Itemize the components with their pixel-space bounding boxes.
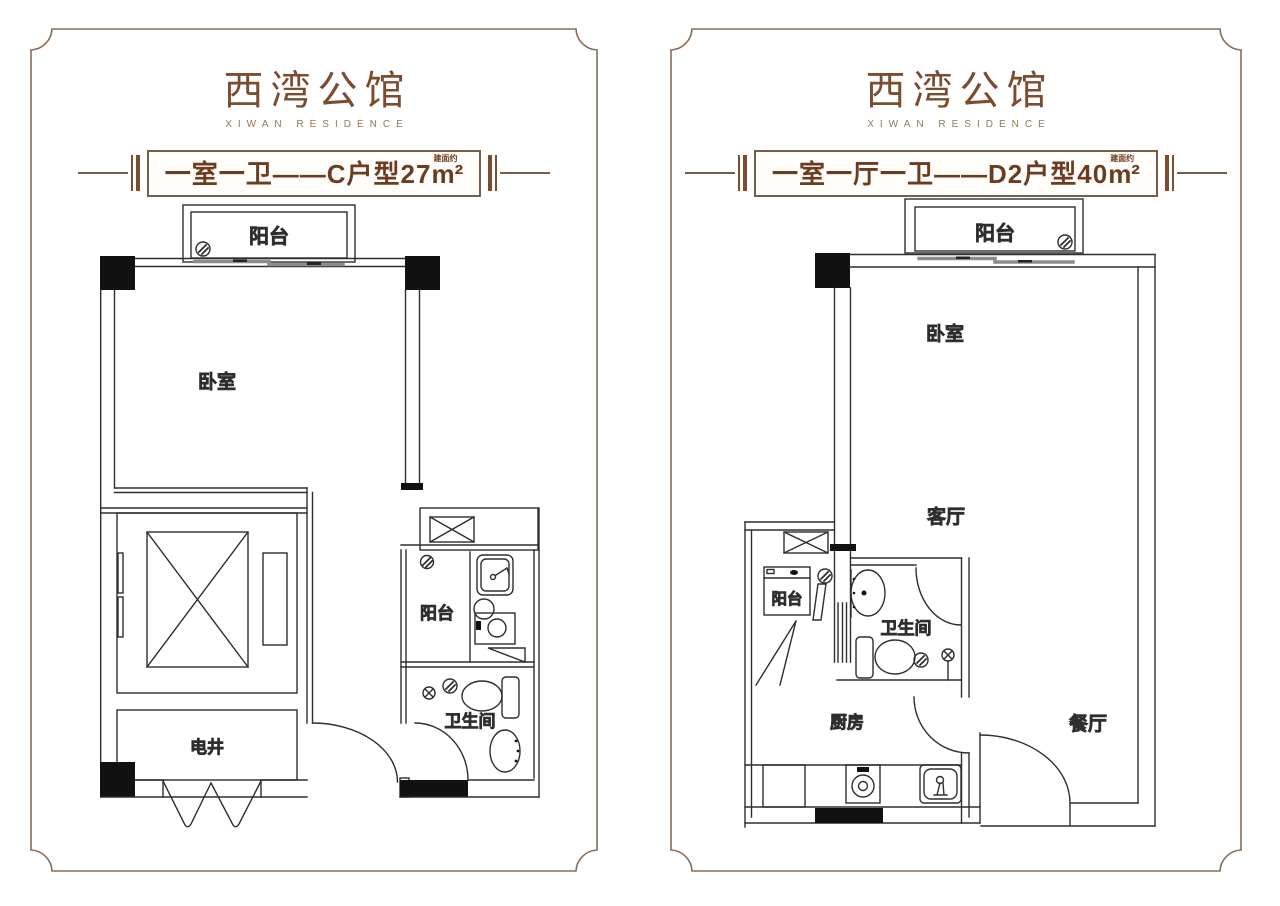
room-label-dining: 餐厅 [1069,713,1107,735]
shutoff-valve-icon [942,649,954,680]
washing-machine [474,599,515,644]
door-leaf [813,584,826,620]
unit-type-banner: 一室一卫——C户型27 建面约 m² [30,152,598,194]
shelf-corner [488,648,525,662]
shutoff-valve-icon [423,687,435,699]
bathroom-door-arc [916,568,961,625]
unit-c-panel: 西湾公馆 XIWAN RESIDENCE 一室一卫——C户型27 建面约 m² [30,28,598,872]
floor-drain-icon [818,569,832,583]
dishwasher [846,765,880,803]
balcony-door-swing [756,621,796,685]
room-label-balcony-small: 阳台 [771,590,802,608]
column [815,808,883,823]
entry-door-arc [980,735,1070,803]
banner-deco-line-right [500,172,550,174]
unit-d2-panel: 西湾公馆 XIWAN RESIDENCE 一室一厅一卫——D2户型40 建面约 … [670,28,1242,872]
banner-deco-line-left [78,172,128,174]
entry-door-arc [313,723,398,782]
brand-subtitle: XIWAN RESIDENCE [670,119,1242,130]
room-label-balcony-small: 阳台 [420,604,454,623]
cabinet [763,765,805,807]
double-swing-door [163,781,261,827]
room-label-bathroom: 卫生间 [881,619,932,638]
banner-deco-bar [1165,155,1169,191]
toilet [856,637,915,678]
unit-type-box: 一室一厅一卫——D2户型40 建面约 m² [754,150,1158,197]
elevator-shaft [147,532,248,667]
floorplan-unit-d2: 阳台 卫生间 [718,197,1178,842]
brand-title: 西湾公馆 [30,58,598,116]
banner-deco-line-right [1177,172,1227,174]
brand-subtitle: XIWAN RESIDENCE [30,119,598,130]
kitchen-sink [920,765,961,803]
wall-break-mark [830,544,856,551]
room-label-balcony-top: 阳台 [249,225,289,248]
window-break [118,553,123,593]
room-label-bathroom: 卫生间 [445,712,496,731]
banner-deco-bar [495,155,497,191]
banner-deco-line-left [685,172,735,174]
banner-deco-bar [136,155,140,191]
banner-deco-bar [131,155,133,191]
banner-deco-bar [1172,155,1174,191]
room-label-living: 客厅 [927,506,965,528]
floor-drain-icon [1058,235,1072,249]
column [400,780,468,797]
unit-type-label: 一室一卫——C户型27 [165,154,432,191]
floor-drain-icon [196,242,210,256]
column [815,253,850,288]
floor-drain-icon [914,653,928,667]
sliding-door [919,257,1073,263]
ac-platform [420,508,538,550]
laundry-sink [477,555,513,595]
room-label-bedroom: 卧室 [198,371,236,393]
unit-type-label: 一室一厅一卫——D2户型40 [772,154,1108,191]
room-label-bedroom: 卧室 [926,323,964,345]
floor-drain-icon [443,679,457,693]
shaft-vent [430,517,474,542]
unit-type-box: 一室一卫——C户型27 建面约 m² [147,150,481,197]
area-note: 建面约 [433,153,457,164]
area-note: 建面约 [1110,153,1134,164]
banner-deco-bar [738,155,740,191]
area-unit: 建面约 m² [1108,159,1140,190]
floor-drain-icon [421,556,434,569]
banner-deco-bar [488,155,492,191]
column [100,256,135,290]
elevator-room [117,513,297,693]
unit-type-banner: 一室一厅一卫——D2户型40 建面约 m² [670,152,1242,194]
bathroom-door-arc [415,723,468,780]
wash-basin [490,730,520,772]
window-break [118,597,123,637]
kitchen-door-arc [914,697,969,753]
floorplan-unit-c: 电井 [85,195,555,840]
counterweight-slot [263,553,287,645]
banner-deco-bar [743,155,747,191]
area-unit: 建面约 m² [431,159,463,190]
shaft-vent [784,532,828,553]
room-label-kitchen: 厨房 [830,713,864,732]
brand-title: 西湾公馆 [670,58,1242,116]
column [100,762,135,797]
column [405,256,440,290]
room-label-balcony-top: 阳台 [975,222,1015,245]
vanity-sink [851,570,885,617]
wall-break-mark [401,483,423,490]
room-label-shaft: 电井 [190,738,224,757]
